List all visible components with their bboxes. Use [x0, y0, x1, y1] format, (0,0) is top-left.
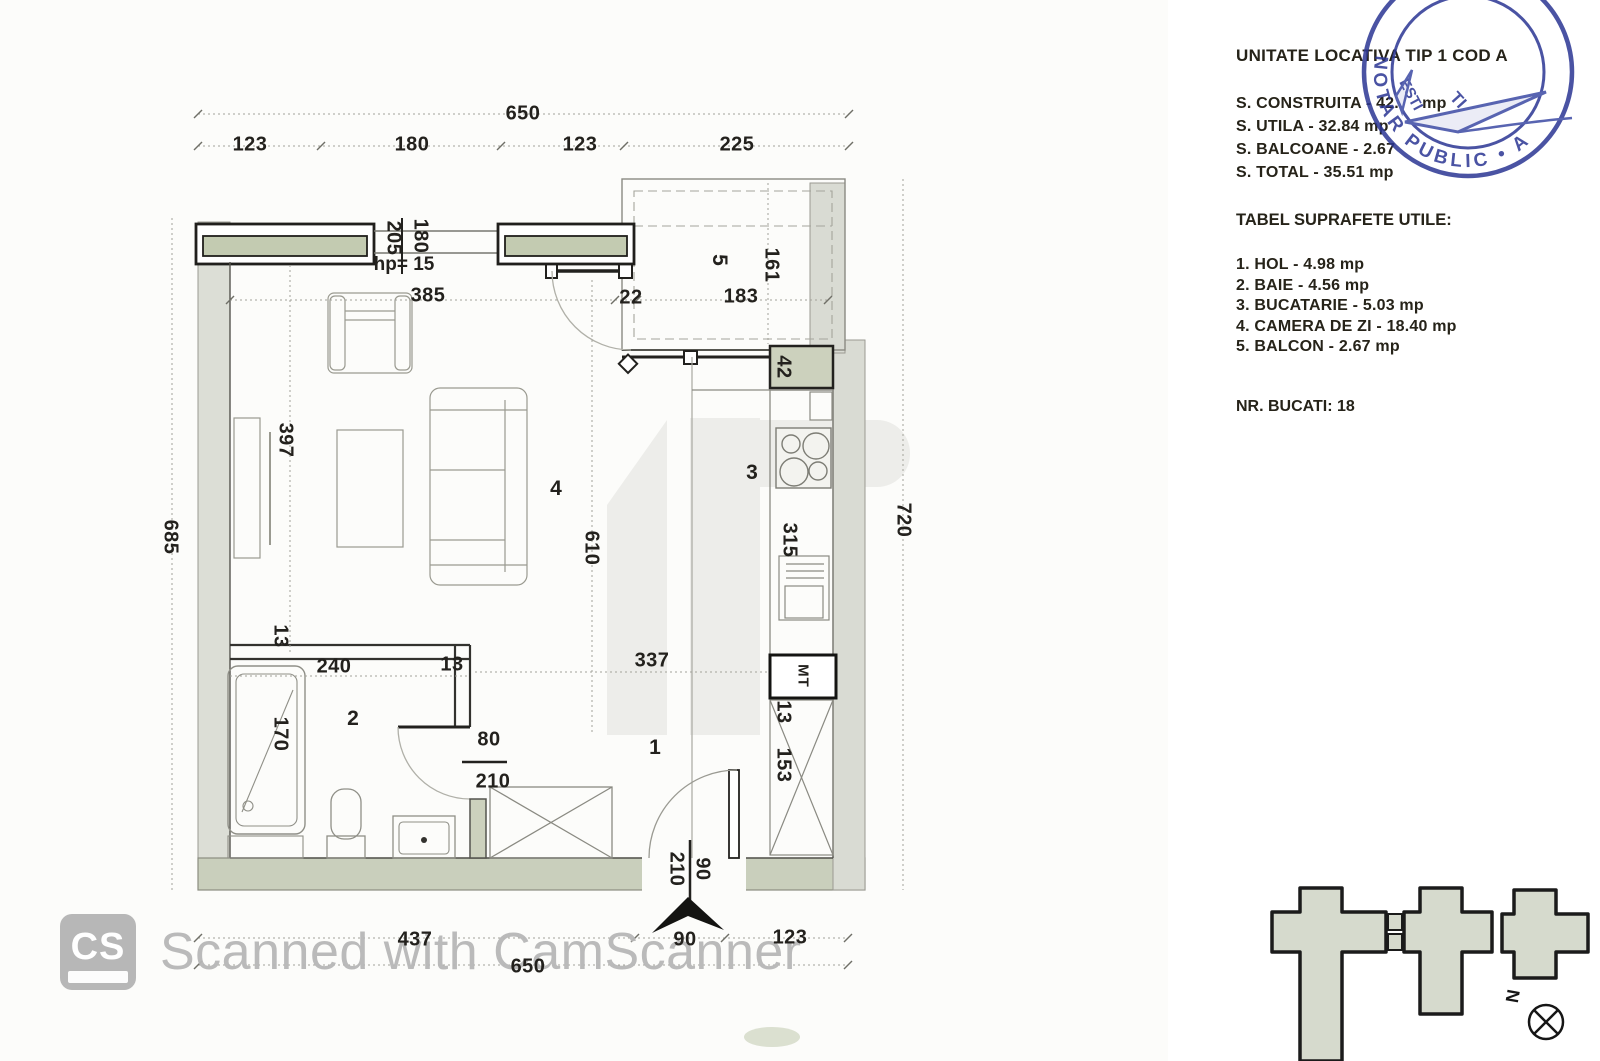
scanned-floor-plan-page: 650 123 180 123 225 685 720 437 90 123 6… — [0, 0, 1600, 1061]
dim-top-seg1: 123 — [233, 134, 268, 157]
dim-top-total: 650 — [506, 103, 541, 126]
camscanner-logo-text: CS — [71, 926, 126, 969]
sofa — [430, 388, 527, 585]
boiler-mt-label: MT — [795, 664, 812, 688]
camscanner-watermark-text: Scanned with CamScanner — [160, 922, 802, 982]
dim-top-seg3: 123 — [563, 134, 598, 157]
dim-kitchen-counter: 315 — [778, 523, 801, 558]
entry-door-height: 210 — [665, 852, 688, 887]
dim-balcony-gap: 22 — [619, 287, 642, 310]
tv-stand — [234, 418, 270, 558]
notary-stamp: NOTAR PUBLIC • A ESTI TI — [1320, 0, 1600, 235]
entry-door — [649, 770, 739, 933]
compass-icon — [1529, 1005, 1563, 1039]
dim-right-total: 720 — [892, 503, 915, 538]
room-area-baie: 2. BAIE - 4.56 mp — [1236, 276, 1596, 297]
dim-bath-wall2: 13 — [440, 654, 463, 677]
dim-bottom-seg1: 437 — [398, 929, 433, 952]
kitchen-sink — [779, 556, 829, 620]
dim-window-h1: 205 — [382, 221, 405, 256]
dim-top-seg2: 180 — [395, 134, 430, 157]
dim-balcony-width: 183 — [724, 286, 759, 309]
room-label-bucatarie: 3 — [746, 461, 758, 485]
window-left — [196, 224, 374, 264]
room-label-hol: 1 — [649, 736, 661, 760]
entry-door-width: 90 — [691, 857, 714, 880]
dim-bathtub: 170 — [269, 717, 292, 752]
room-label-camera-de-zi: 4 — [550, 477, 562, 501]
dim-tv-wall: 397 — [274, 423, 297, 458]
dim-bottom-seg3: 123 — [773, 927, 808, 950]
dim-left-total: 685 — [159, 520, 182, 555]
dim-wardrobe: 153 — [772, 748, 795, 783]
dim-bath-width: 240 — [317, 656, 352, 679]
dim-living-width: 385 — [411, 285, 446, 308]
room-label-balcon: 5 — [707, 254, 731, 266]
parapet-label: hp= 15 — [374, 254, 435, 276]
room-area-camera: 4. CAMERA DE ZI - 18.40 mp — [1236, 317, 1596, 338]
coffee-table — [337, 430, 403, 547]
camscanner-logo-icon: CS — [60, 914, 136, 990]
dim-bottom-total: 650 — [511, 956, 546, 979]
scan-smudge — [744, 1027, 800, 1047]
dim-wall-stub: 42 — [772, 355, 795, 378]
toilet — [327, 789, 365, 858]
dim-top-seg4: 225 — [720, 134, 755, 157]
dim-window-h2: 180 — [409, 219, 432, 254]
bath-sink — [393, 816, 455, 858]
dim-bath-wall-thk: 13 — [269, 624, 292, 647]
dim-hall-width: 337 — [635, 650, 670, 673]
bathtub — [228, 666, 305, 858]
dim-bottom-seg2: 90 — [673, 929, 696, 952]
dim-balcony-depth: 161 — [760, 248, 783, 283]
bath-door-width: 80 — [477, 729, 500, 752]
key-plan — [1272, 888, 1588, 1061]
bath-door-height: 210 — [476, 771, 511, 794]
armchair — [328, 293, 412, 373]
stove — [776, 428, 831, 488]
room-area-bucatarie: 3. BUCATARIE - 5.03 mp — [1236, 296, 1596, 317]
dim-right-wall-thk: 13 — [772, 700, 795, 723]
dim-living-depth: 610 — [580, 531, 603, 566]
camscanner-watermark: CS Scanned with CamScanner — [60, 914, 802, 990]
nr-bucati: NR. BUCATI: 18 — [1236, 398, 1596, 416]
room-area-balcon: 5. BALCON - 2.67 mp — [1236, 337, 1596, 358]
room-label-baie: 2 — [347, 707, 359, 731]
window-right — [498, 224, 634, 264]
hall-wardrobe — [490, 787, 612, 858]
room-area-hol: 1. HOL - 4.98 mp — [1236, 255, 1596, 276]
